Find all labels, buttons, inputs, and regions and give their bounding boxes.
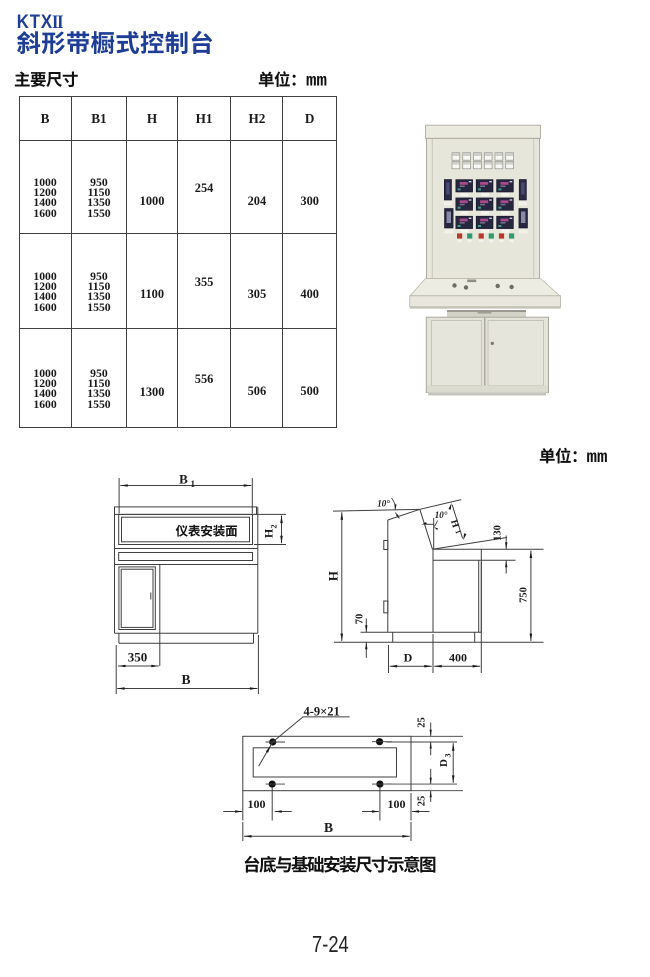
svg-text:H: H <box>326 571 341 581</box>
svg-text:D: D <box>438 759 450 767</box>
svg-text:B: B <box>181 672 190 687</box>
svg-text:D: D <box>404 651 413 665</box>
svg-text:70: 70 <box>355 614 366 625</box>
svg-text:130: 130 <box>493 525 504 541</box>
svg-text:100: 100 <box>388 797 406 811</box>
svg-text:350: 350 <box>128 650 148 665</box>
svg-text:2: 2 <box>269 524 279 528</box>
svg-text:25: 25 <box>417 796 428 807</box>
svg-text:B: B <box>179 472 188 487</box>
svg-text:KTX: KTX <box>17 11 53 32</box>
svg-text:H: H <box>262 528 276 538</box>
svg-text:25: 25 <box>417 717 428 728</box>
svg-text:10°: 10° <box>377 499 390 509</box>
svg-text:400: 400 <box>449 651 467 665</box>
svg-text:B: B <box>324 820 333 835</box>
svg-text:10°: 10° <box>435 510 448 520</box>
svg-text:mm: mm <box>587 448 608 468</box>
svg-text:mm: mm <box>306 72 327 92</box>
svg-text:II: II <box>52 11 64 32</box>
svg-text:1: 1 <box>191 479 196 489</box>
svg-text:3: 3 <box>444 754 453 758</box>
svg-text:100: 100 <box>248 797 266 811</box>
svg-text:750: 750 <box>519 587 530 603</box>
